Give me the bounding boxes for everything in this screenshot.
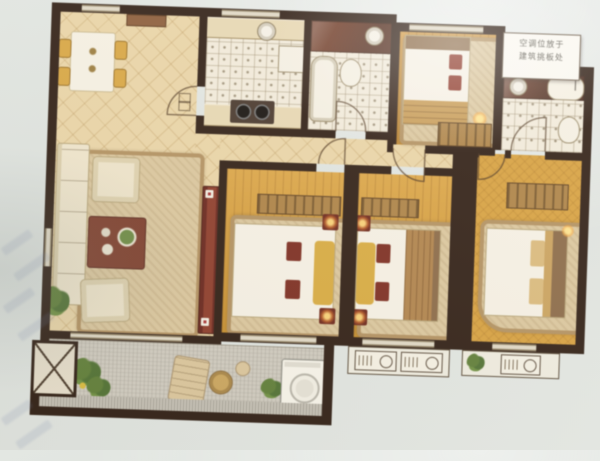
bath1-door-arc	[336, 101, 367, 132]
bedroom-left-door-arc	[319, 138, 346, 165]
ac-annotation-note: 空调位放于 建筑挑板处	[502, 32, 582, 81]
bedroom-right-door-arc	[478, 153, 505, 180]
floor-plan: 空调位放于 建筑挑板处	[27, 2, 600, 461]
watermark-smudge	[0, 229, 33, 256]
bath2-door-arc	[511, 116, 546, 151]
bedroom-middle-door-arc	[392, 148, 425, 181]
kitchen-door-arc	[167, 85, 197, 115]
photo-of-floor-plan: { "image_type": "photo-of-apartment-floo…	[0, 0, 600, 450]
ac-note-line2: 建筑挑板处	[503, 50, 579, 65]
